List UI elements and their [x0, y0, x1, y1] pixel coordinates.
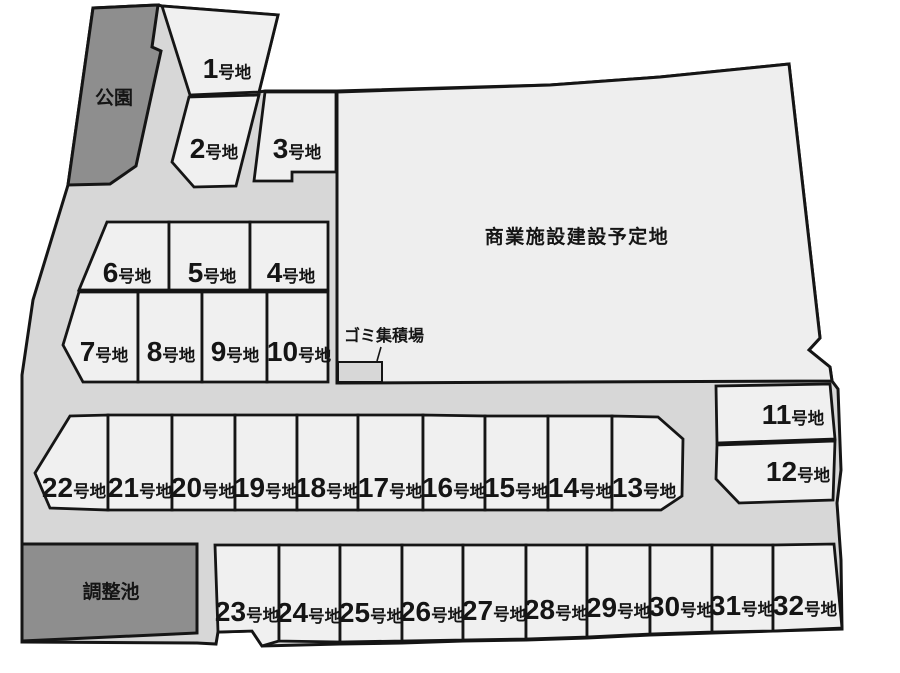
plot-7: [63, 292, 138, 382]
plot-3: [254, 92, 336, 181]
lot-map: 公園 商業施設建設予定地 ゴミ集積場 調整池 1号地 2号地 3号地 6号地 5…: [0, 0, 900, 673]
commercial-label: 商業施設建設予定地: [485, 225, 670, 248]
pond-label: 調整池: [82, 580, 139, 603]
garbage-label: ゴミ集積場: [344, 326, 424, 345]
plot-29: [587, 545, 650, 637]
lot-map-canvas: 公園 商業施設建設予定地 ゴミ集積場 調整池 1号地 2号地 3号地 6号地 5…: [0, 0, 900, 673]
garbage-station: [338, 362, 382, 382]
park-label: 公園: [95, 87, 133, 109]
